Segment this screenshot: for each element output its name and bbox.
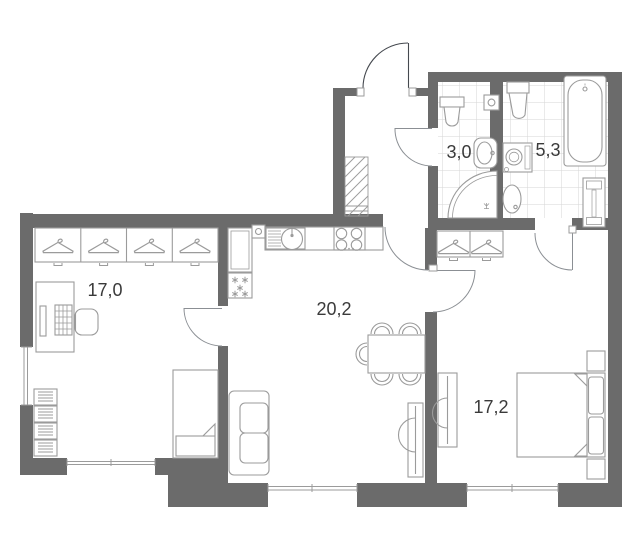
chair bbox=[399, 374, 421, 385]
dishwasher-icon bbox=[228, 273, 252, 298]
bedroom-door bbox=[429, 265, 475, 312]
kitchen-door bbox=[385, 227, 428, 270]
nightstand bbox=[587, 459, 605, 479]
bedroom-furniture bbox=[433, 231, 606, 479]
window-left-room-bottom bbox=[67, 459, 155, 466]
desk bbox=[36, 282, 74, 352]
sink-icon bbox=[474, 138, 497, 168]
room-label-left: 17,0 bbox=[87, 280, 122, 300]
kitchen-module bbox=[252, 225, 265, 238]
room-label-bathroom-large: 5,3 bbox=[535, 140, 560, 160]
single-bed bbox=[173, 370, 218, 458]
left-room-furniture bbox=[34, 228, 218, 458]
bathroom-small-door bbox=[395, 128, 432, 166]
bathroom-large-door bbox=[535, 226, 576, 270]
wardrobe-left-room bbox=[35, 228, 218, 266]
towel-rail-icon bbox=[583, 178, 605, 227]
fridge-icon bbox=[228, 228, 252, 272]
bookshelf bbox=[34, 389, 57, 456]
keyboard-icon bbox=[55, 305, 72, 335]
left-room-door bbox=[184, 308, 222, 346]
mirror-kitchen-side bbox=[399, 403, 424, 477]
nightstand bbox=[587, 351, 605, 371]
room-label-kitchen-living: 20,2 bbox=[316, 299, 351, 319]
floor-plan-drawing: 17,0 20,2 3,0 5,3 17,2 bbox=[0, 0, 638, 550]
bathtub-icon bbox=[564, 76, 606, 166]
floor-plan: 17,0 20,2 3,0 5,3 17,2 bbox=[0, 0, 638, 550]
wardrobe-bedroom bbox=[437, 231, 503, 261]
monitor-icon bbox=[40, 306, 46, 336]
chair bbox=[356, 343, 367, 365]
chair bbox=[371, 374, 393, 385]
window-bedroom-bottom bbox=[467, 484, 558, 492]
window-kitchen-bottom bbox=[268, 484, 357, 492]
desk-chair bbox=[75, 309, 98, 335]
double-bed bbox=[517, 373, 605, 457]
chair bbox=[371, 323, 393, 334]
dining-table bbox=[356, 323, 425, 385]
room-label-bathroom-small: 3,0 bbox=[446, 142, 471, 162]
window-left-room-side bbox=[21, 347, 32, 405]
sink-icon bbox=[503, 185, 521, 213]
chair bbox=[399, 323, 421, 334]
room-label-bedroom: 17,2 bbox=[473, 397, 508, 417]
hallway-closet bbox=[345, 157, 368, 216]
sofa bbox=[229, 391, 269, 475]
vent-icon bbox=[484, 95, 499, 110]
windows bbox=[21, 347, 558, 492]
kitchen-furniture bbox=[228, 225, 425, 477]
washing-machine-icon bbox=[503, 143, 532, 172]
entrance-door bbox=[357, 43, 416, 96]
